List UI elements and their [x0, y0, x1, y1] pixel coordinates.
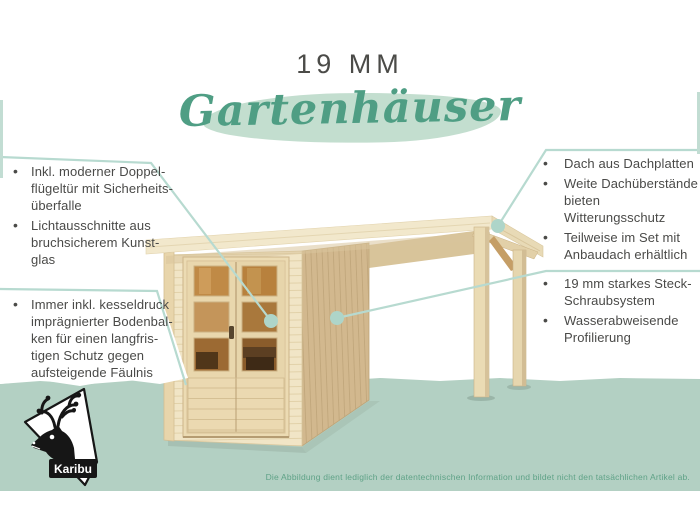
feature-item: Teilweise im Set mit Anbaudach erhältlic…	[540, 229, 698, 263]
feature-item: Immer inkl. kesseldruck imprägnierter Bo…	[12, 296, 180, 381]
callout-left-bottom: Immer inkl. kesseldruck imprägnierter Bo…	[12, 296, 180, 381]
feature-item: Wasserabweisende Profilierung	[540, 312, 698, 346]
callout-right-top: Dach aus Dachplatten Weite Dachüberständ…	[540, 155, 698, 263]
product-infographic: Karibu 19 MM Gartenhäuser Inkl. moderner…	[0, 0, 700, 525]
double-door	[183, 257, 289, 437]
feature-item: Weite Dachüberstände bieten Witterungssc…	[540, 175, 698, 226]
feature-item: 19 mm starkes Steck- Schraubsystem	[540, 275, 698, 309]
logo-brand-text: Karibu	[54, 462, 92, 476]
disclaimer-text: Die Abbildung dient lediglich der datent…	[266, 472, 690, 482]
feature-item: Lichtausschnitte aus bruchsicherem Kunst…	[12, 217, 180, 268]
feature-item: Inkl. moderner Doppel- flügeltür mit Sic…	[12, 163, 180, 214]
door-handle	[229, 326, 234, 339]
callout-dot-door	[264, 314, 278, 328]
callout-left-top: Inkl. moderner Doppel- flügeltür mit Sic…	[12, 163, 180, 268]
feature-item: Dach aus Dachplatten	[540, 155, 698, 172]
callout-dot-wall	[330, 311, 344, 325]
size-label: 19 MM	[0, 49, 700, 80]
callout-right-bottom: 19 mm starkes Steck- Schraubsystem Wasse…	[540, 275, 698, 346]
callout-dot-roof	[491, 219, 505, 233]
